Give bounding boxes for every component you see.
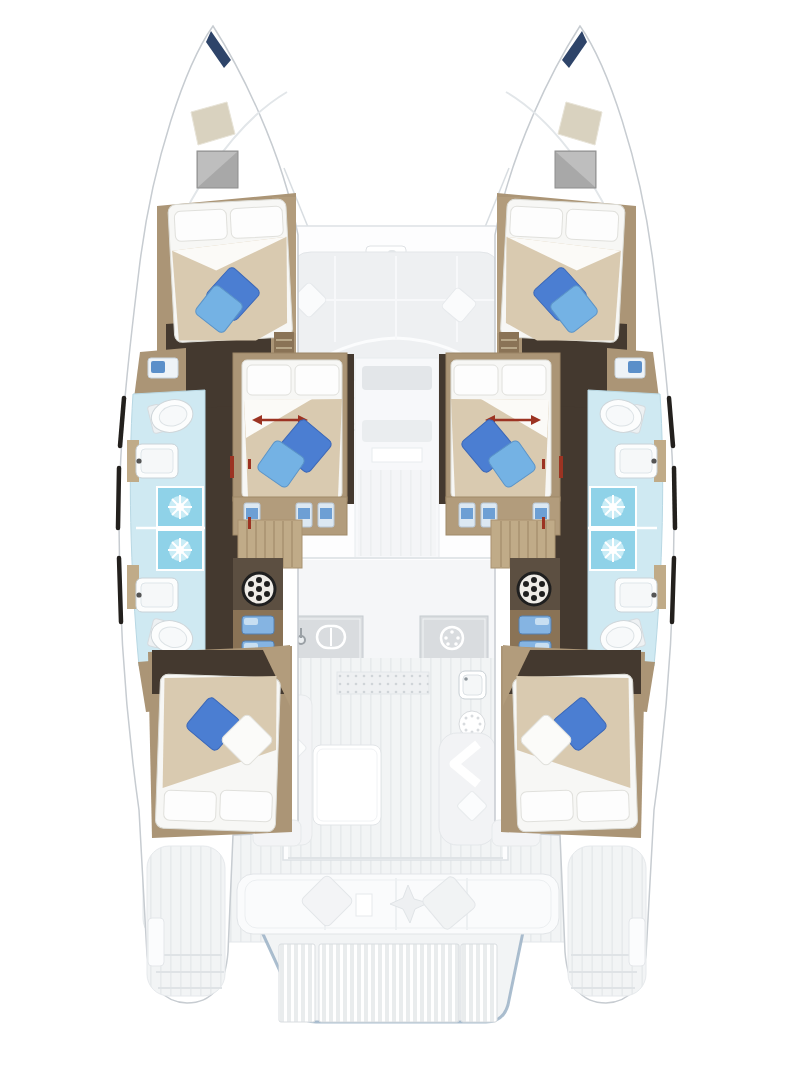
starboard-chaise [439, 733, 496, 845]
chart-seat [362, 366, 432, 390]
corridor-floor [358, 470, 436, 556]
saloon-table [313, 745, 381, 825]
floor-mat [337, 672, 429, 694]
galley-sink-aft [459, 671, 486, 699]
chart-table [362, 420, 432, 442]
bench-tray [356, 894, 372, 916]
center-cabinhouse [278, 226, 508, 860]
crossbeam-lines [284, 168, 509, 232]
swim-platform [262, 932, 523, 1022]
teak-grating [461, 944, 497, 1022]
galley-counter-cooktop [420, 616, 488, 662]
catamaran-floor-plan [0, 0, 791, 1080]
aft-cockpit [237, 874, 559, 934]
nav-corridor [355, 358, 439, 558]
saloon [278, 658, 503, 858]
teak-grating [319, 944, 459, 1022]
galley [283, 560, 503, 662]
teak-grating [279, 944, 315, 1022]
step [372, 448, 422, 462]
